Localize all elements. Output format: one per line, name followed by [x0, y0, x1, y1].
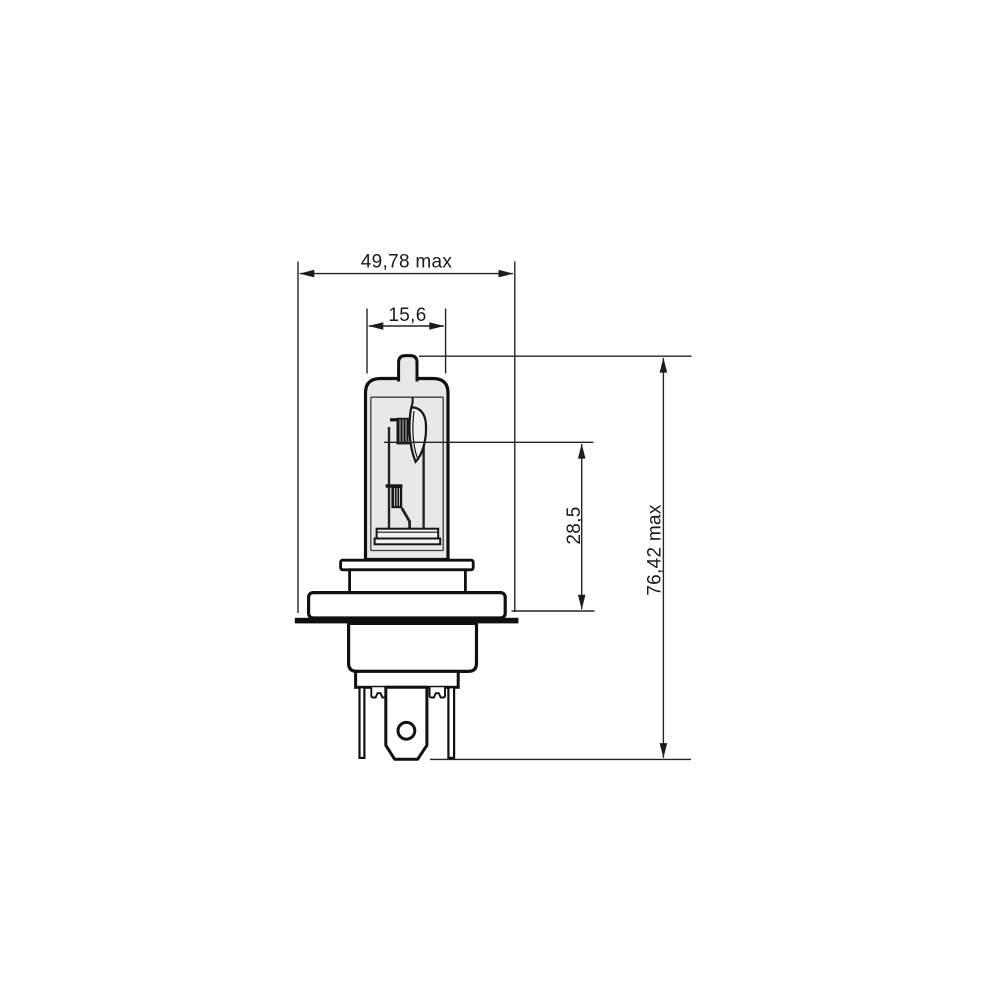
- technical-drawing-canvas: 49,78 max 15,6 28,5 76,42 max: [0, 0, 1000, 1000]
- collar-ring: [341, 560, 474, 570]
- dimension-label-overall-width: 49,78 max: [361, 252, 453, 273]
- pin-housing: [356, 671, 459, 687]
- pinch-seal: [375, 529, 441, 545]
- bulb-assembly: [295, 356, 519, 760]
- neck: [350, 570, 466, 593]
- dimension-label-filament-to-flange: 28,5: [564, 506, 585, 544]
- bulb-tip: [399, 356, 417, 382]
- base-body: [349, 623, 477, 671]
- contact-pin-right: [448, 687, 454, 758]
- contact-pin-left: [360, 687, 365, 758]
- mounting-flange: [309, 593, 506, 618]
- dimension-overall-length: 76,42 max: [419, 356, 692, 759]
- pin-hole: [398, 722, 415, 739]
- dimension-label-bulb-diameter: 15,6: [388, 305, 426, 326]
- drawing-page: 49,78 max 15,6 28,5 76,42 max: [0, 0, 1000, 1000]
- dimension-label-overall-length: 76,42 max: [645, 504, 666, 596]
